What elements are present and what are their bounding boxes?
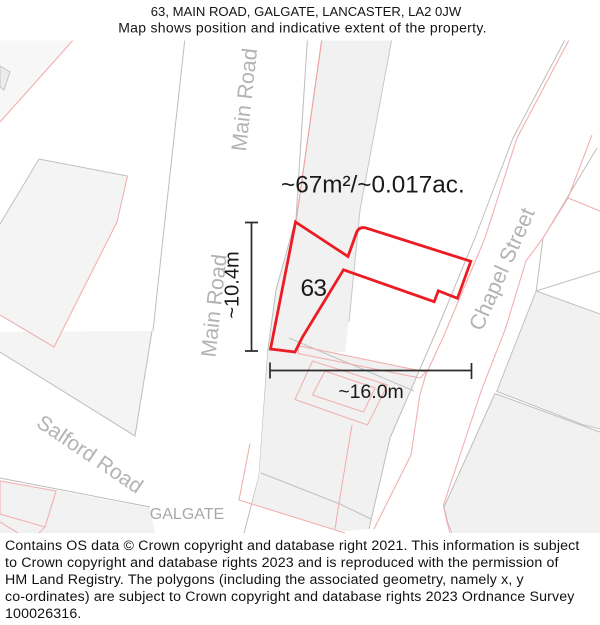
svg-text:GALGATE: GALGATE xyxy=(150,506,224,523)
svg-text:HM Land Registry. The polygons: HM Land Registry. The polygons (includin… xyxy=(5,572,525,588)
svg-text:~10.4m: ~10.4m xyxy=(222,251,244,318)
svg-text:to Crown copyright and databas: to Crown copyright and database rights 2… xyxy=(5,555,559,571)
svg-text:~67m²/~0.017ac.: ~67m²/~0.017ac. xyxy=(281,172,465,199)
svg-text:Contains OS data © Crown copyr: Contains OS data © Crown copyright and d… xyxy=(5,538,580,554)
svg-text:63: 63 xyxy=(301,275,327,302)
svg-text:Map shows position and indicat: Map shows position and indicative extent… xyxy=(118,20,487,36)
svg-text:~16.0m: ~16.0m xyxy=(338,381,404,403)
svg-text:63, MAIN ROAD, GALGATE, LANCAS: 63, MAIN ROAD, GALGATE, LANCASTER, LA2 0… xyxy=(151,4,462,19)
svg-text:co-ordinates) are subject to C: co-ordinates) are subject to Crown copyr… xyxy=(5,589,575,605)
svg-text:100026316.: 100026316. xyxy=(5,606,81,622)
